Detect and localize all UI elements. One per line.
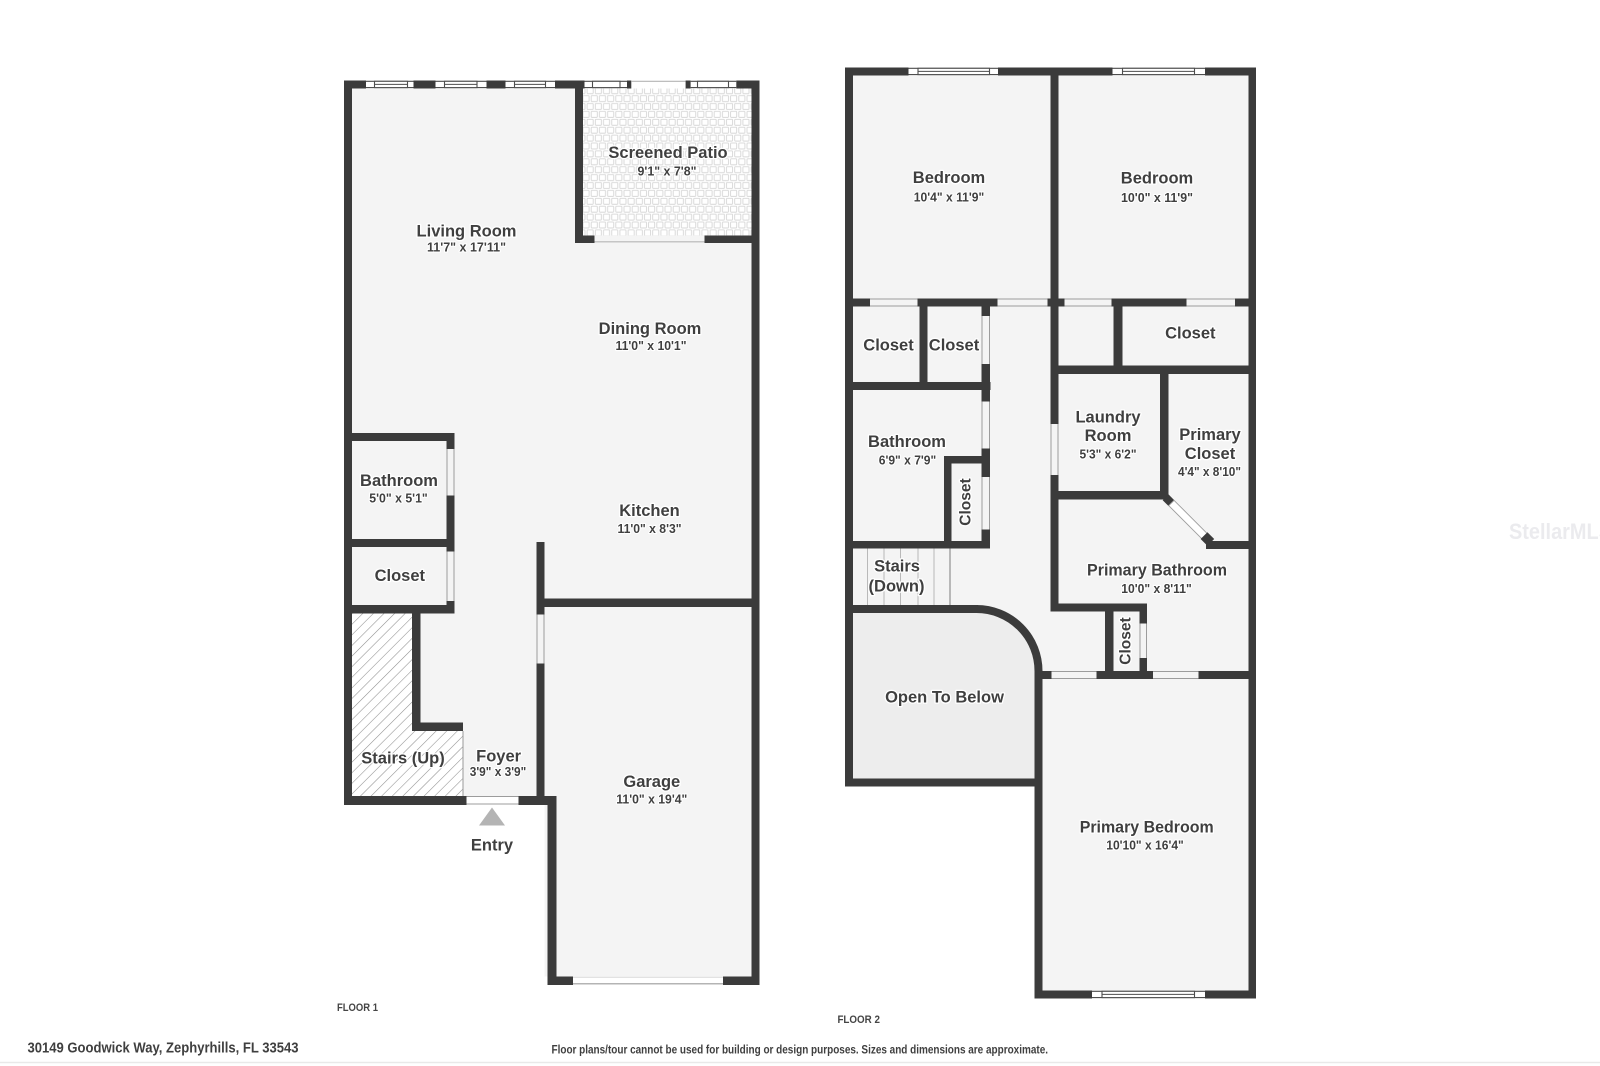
svg-text:Stairs: Stairs — [874, 558, 920, 576]
svg-text:Living Room: Living Room — [417, 223, 517, 241]
svg-text:30149 Goodwick Way, Zephyrhill: 30149 Goodwick Way, Zephyrhills, FL 3354… — [28, 1040, 299, 1057]
svg-text:StellarMLS: StellarMLS — [1509, 519, 1600, 544]
svg-text:Closet: Closet — [929, 337, 980, 355]
svg-text:(Down): (Down) — [869, 578, 925, 596]
svg-text:10'10" x 16'4": 10'10" x 16'4" — [1106, 838, 1184, 853]
svg-text:Primary: Primary — [1179, 426, 1241, 444]
svg-text:Closet: Closet — [1118, 617, 1135, 664]
svg-text:Bedroom: Bedroom — [1121, 170, 1193, 188]
svg-text:10'4" x 11'9": 10'4" x 11'9" — [914, 190, 985, 205]
svg-text:Primary Bathroom: Primary Bathroom — [1087, 562, 1227, 580]
svg-text:5'0" x 5'1": 5'0" x 5'1" — [369, 491, 428, 506]
svg-text:11'0" x 19'4": 11'0" x 19'4" — [616, 792, 687, 807]
svg-text:3'9" x 3'9": 3'9" x 3'9" — [470, 764, 527, 779]
svg-text:Room: Room — [1085, 427, 1132, 445]
svg-text:Bathroom: Bathroom — [360, 472, 438, 490]
svg-text:FLOOR 1: FLOOR 1 — [337, 1002, 378, 1014]
svg-text:Open To Below: Open To Below — [885, 689, 1004, 707]
svg-text:Closet: Closet — [375, 567, 426, 585]
svg-text:5'3" x 6'2": 5'3" x 6'2" — [1080, 447, 1137, 462]
svg-text:Bedroom: Bedroom — [913, 169, 985, 187]
svg-text:Dining Room: Dining Room — [599, 320, 702, 338]
svg-text:11'0" x 8'3": 11'0" x 8'3" — [618, 521, 682, 536]
svg-text:4'4" x 8'10": 4'4" x 8'10" — [1178, 464, 1241, 479]
svg-text:Primary Bedroom: Primary Bedroom — [1080, 819, 1214, 837]
svg-text:Laundry: Laundry — [1075, 409, 1141, 427]
svg-text:11'7" x 17'11": 11'7" x 17'11" — [427, 240, 506, 255]
svg-text:Entry: Entry — [471, 837, 514, 855]
svg-text:10'0" x 8'11": 10'0" x 8'11" — [1121, 581, 1192, 596]
svg-text:Bathroom: Bathroom — [868, 433, 946, 451]
svg-text:Garage: Garage — [623, 773, 680, 791]
svg-text:10'0" x 11'9": 10'0" x 11'9" — [1121, 190, 1193, 205]
svg-text:Closet: Closet — [863, 337, 914, 355]
svg-text:Closet: Closet — [1185, 445, 1236, 463]
svg-text:Floor plans/tour cannot be use: Floor plans/tour cannot be used for buil… — [552, 1043, 1049, 1057]
svg-text:Closet: Closet — [1165, 325, 1216, 343]
svg-text:FLOOR 2: FLOOR 2 — [837, 1014, 880, 1026]
svg-text:Closet: Closet — [958, 478, 975, 525]
svg-text:Screened Patio: Screened Patio — [608, 144, 727, 162]
svg-text:9'1" x 7'8": 9'1" x 7'8" — [638, 164, 697, 179]
svg-text:6'9" x 7'9": 6'9" x 7'9" — [879, 453, 937, 468]
svg-text:Kitchen: Kitchen — [619, 502, 680, 520]
svg-text:Stairs (Up): Stairs (Up) — [361, 750, 444, 768]
svg-text:11'0" x 10'1": 11'0" x 10'1" — [616, 338, 687, 353]
svg-text:Foyer: Foyer — [476, 748, 522, 766]
